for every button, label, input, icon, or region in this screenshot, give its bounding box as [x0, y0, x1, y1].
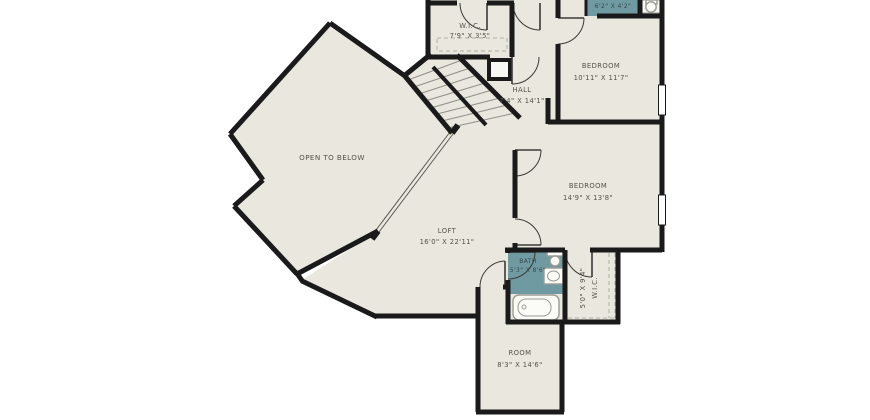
label-loft-dims: 16'0" X 22'11": [420, 238, 475, 246]
label-bath-top-dims: 6'2" X 4'2": [595, 3, 631, 10]
label-bath-2-name: BATH: [519, 258, 537, 265]
closet-square: [489, 60, 510, 79]
label-loft-name: LOFT: [438, 227, 457, 235]
label-hall-name: HALL: [513, 86, 532, 94]
toilet-bowl-icon: [550, 256, 560, 266]
label-room-dims: 8'3" X 14'6": [497, 361, 542, 369]
toilet-top-bowl-icon: [646, 2, 656, 12]
label-room-name: ROOM: [509, 349, 532, 357]
label-wic-top-dims: 7'9" X 3'5": [450, 32, 491, 40]
label-bedroom-2-name: BEDROOM: [569, 182, 607, 190]
label-open-to-below: OPEN TO BELOW: [299, 153, 365, 162]
label-wic-2-name: W.I.C.: [591, 277, 599, 299]
label-bath-2-dims: 5'3" X 8'6": [510, 267, 546, 274]
label-wic-top-name: W.I.C.: [459, 22, 481, 30]
window-bedroom-2: [659, 195, 666, 225]
label-wic-2-dims: 5'0" X 9'4": [579, 268, 587, 309]
floor-plan-svg: W.I.C. 7'9" X 3'5" 6'2" X 4'2" BEDROOM 1…: [0, 0, 870, 420]
label-bedroom-1-name: BEDROOM: [582, 62, 620, 70]
floor-plan-page: W.I.C. 7'9" X 3'5" 6'2" X 4'2" BEDROOM 1…: [0, 0, 870, 420]
sink-vanity-icon: [544, 268, 563, 284]
label-bedroom-2-dims: 14'9" X 13'8": [563, 194, 613, 202]
label-hall-dims: 7'4" X 14'1": [499, 97, 544, 105]
window-bedroom-1: [659, 85, 666, 115]
label-bedroom-1-dims: 10'11" X 11'7": [574, 74, 629, 82]
